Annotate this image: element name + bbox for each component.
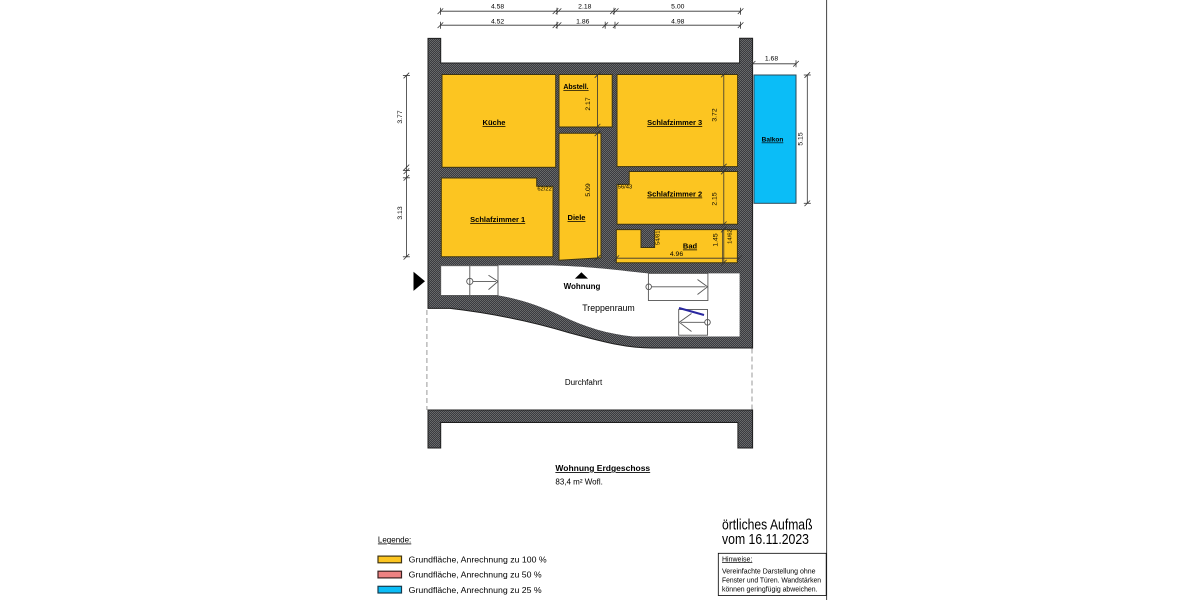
svg-text:2.15: 2.15 — [712, 192, 719, 205]
svg-text:Schlafzimmer 2: Schlafzimmer 2 — [647, 190, 702, 199]
svg-text:5.09: 5.09 — [585, 183, 592, 196]
svg-text:4.58: 4.58 — [491, 4, 504, 11]
svg-text:5.15: 5.15 — [798, 132, 805, 145]
svg-text:83,4 m² Wofl.: 83,4 m² Wofl. — [555, 478, 602, 487]
svg-text:Durchfahrt: Durchfahrt — [565, 378, 603, 387]
svg-text:Diele: Diele — [568, 213, 586, 222]
svg-text:54/81: 54/81 — [655, 231, 661, 246]
svg-text:2.17: 2.17 — [585, 97, 592, 110]
svg-text:Bad: Bad — [683, 242, 698, 251]
svg-text:4.98: 4.98 — [671, 18, 684, 25]
svg-text:2.18: 2.18 — [578, 4, 591, 11]
svg-text:1.86: 1.86 — [576, 18, 589, 25]
svg-text:Schlafzimmer 3: Schlafzimmer 3 — [647, 118, 702, 127]
svg-text:14/62: 14/62 — [728, 229, 734, 244]
svg-text:Legende:: Legende: — [378, 536, 411, 545]
svg-text:1.45: 1.45 — [713, 233, 720, 246]
svg-text:Wohnung: Wohnung — [564, 282, 601, 291]
svg-text:Grundfläche, Anrechnung zu 50: Grundfläche, Anrechnung zu 50 % — [409, 571, 542, 580]
svg-text:3.13: 3.13 — [397, 206, 404, 219]
svg-text:3.72: 3.72 — [712, 108, 719, 121]
svg-text:Fenster und Türen. Wandstärken: Fenster und Türen. Wandstärken — [722, 578, 821, 585]
svg-text:Balkon: Balkon — [762, 137, 784, 144]
svg-text:Schlafzimmer 1: Schlafzimmer 1 — [470, 215, 525, 224]
svg-text:vom 16.11.2023: vom 16.11.2023 — [722, 531, 809, 548]
svg-text:Hinweise:: Hinweise: — [722, 556, 752, 563]
svg-text:Grundfläche, Anrechnung zu 100: Grundfläche, Anrechnung zu 100 % — [409, 556, 547, 565]
svg-text:Wohnung Erdgeschoss: Wohnung Erdgeschoss — [555, 463, 650, 473]
svg-text:Treppenraum: Treppenraum — [582, 303, 634, 313]
svg-text:Küche: Küche — [483, 118, 506, 127]
svg-text:62/22: 62/22 — [537, 187, 552, 193]
svg-text:56/43: 56/43 — [618, 185, 633, 191]
svg-text:Vereinfachte Darstellung ohne: Vereinfachte Darstellung ohne — [722, 569, 816, 576]
svg-text:5.00: 5.00 — [671, 4, 684, 11]
svg-text:Grundfläche, Anrechnung zu 25: Grundfläche, Anrechnung zu 25 % — [409, 586, 542, 595]
svg-text:Abstell.: Abstell. — [563, 84, 588, 91]
svg-text:können geringfügig abweichen.: können geringfügig abweichen. — [722, 587, 818, 594]
svg-text:1.68: 1.68 — [765, 56, 778, 63]
svg-text:4.96: 4.96 — [670, 251, 683, 258]
svg-text:3.77: 3.77 — [397, 110, 404, 123]
svg-text:4.52: 4.52 — [491, 18, 504, 25]
